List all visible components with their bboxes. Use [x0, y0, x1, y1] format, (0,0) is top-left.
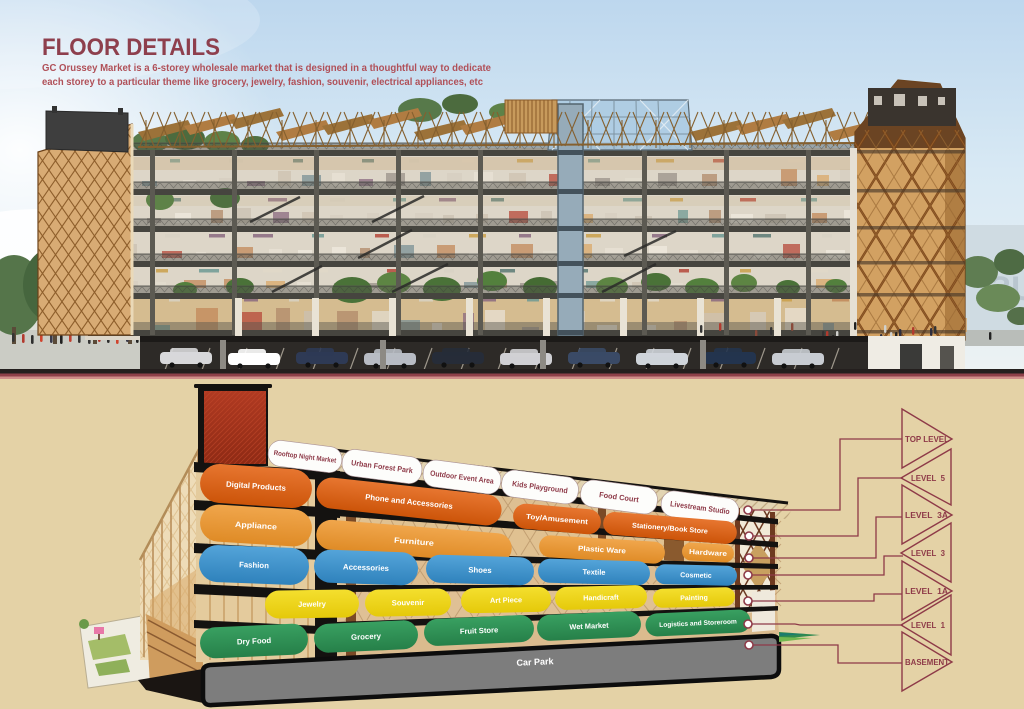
svg-text:Cosmetic: Cosmetic: [680, 572, 712, 580]
svg-text:LEVEL 1: LEVEL 1: [911, 620, 945, 630]
svg-text:Handicraft: Handicraft: [583, 593, 619, 603]
svg-text:LEVEL 3A: LEVEL 3A: [905, 510, 948, 520]
svg-text:GC Orussey Market is a 6-store: GC Orussey Market is a 6-storey wholesal…: [42, 62, 491, 74]
svg-text:Fashion: Fashion: [239, 560, 269, 570]
svg-text:Fruit Store: Fruit Store: [460, 625, 499, 636]
svg-text:Jewelry: Jewelry: [298, 599, 327, 608]
svg-text:Wet Market: Wet Market: [569, 621, 609, 632]
svg-text:Car Park: Car Park: [516, 656, 554, 668]
svg-text:FLOOR DETAILS: FLOOR DETAILS: [42, 34, 220, 61]
svg-text:Painting: Painting: [680, 595, 708, 603]
svg-text:BASEMENT: BASEMENT: [905, 657, 950, 667]
svg-text:each storey to a particular th: each storey to a particular theme like g…: [42, 76, 483, 88]
svg-text:Souvenir: Souvenir: [392, 598, 425, 608]
svg-text:Shoes: Shoes: [468, 565, 492, 575]
svg-text:Grocery: Grocery: [351, 631, 382, 641]
svg-text:TOP LEVEL: TOP LEVEL: [905, 434, 949, 444]
svg-text:Textile: Textile: [582, 567, 605, 577]
svg-text:Art Piece: Art Piece: [490, 595, 522, 605]
svg-text:LEVEL 1A: LEVEL 1A: [905, 586, 948, 596]
svg-text:LEVEL 5: LEVEL 5: [911, 473, 945, 483]
svg-text:Accessories: Accessories: [343, 562, 390, 573]
svg-text:Dry Food: Dry Food: [237, 636, 272, 647]
svg-text:LEVEL 3: LEVEL 3: [911, 548, 945, 558]
